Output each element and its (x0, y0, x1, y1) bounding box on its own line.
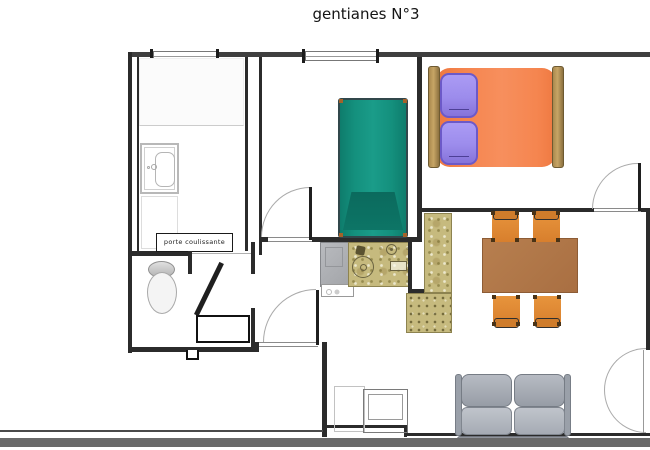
pillow (440, 121, 478, 165)
bedroom2-door-leaf (638, 163, 641, 211)
toilet-bowl (147, 272, 177, 314)
dining-chair (493, 296, 520, 326)
sofa-seat-cushion (461, 407, 512, 435)
double-bed-footboard (552, 66, 564, 168)
window-bedroom1 (305, 51, 377, 61)
bedroom1-door-threshold (268, 237, 312, 242)
entry-door-leaf (316, 290, 319, 345)
kitchen-board (390, 261, 407, 271)
entry-door-arc (263, 289, 316, 342)
wc-storage-box (196, 315, 250, 343)
kitchen-tap (355, 245, 366, 256)
dining-chair (533, 212, 560, 242)
kitchen-sink (352, 256, 374, 278)
wall-bathroom-right (245, 57, 248, 251)
kitchen-bar-return (406, 293, 452, 333)
wall-right (646, 212, 650, 350)
kitchen-hob (386, 244, 397, 255)
side-table-outline (334, 386, 365, 432)
bed-post (339, 233, 343, 237)
bedroom2-door-arc (592, 163, 638, 209)
wall-wc-angled (194, 262, 224, 316)
tv-stand (363, 389, 408, 433)
wall-left (128, 52, 132, 353)
wall-notch (186, 350, 199, 360)
double-bed-headboard (428, 66, 440, 168)
wall-bedroom2-bottom-stub (641, 208, 650, 212)
window-cap (302, 49, 305, 63)
dining-chair (492, 212, 519, 242)
french-door-leaf (643, 350, 644, 433)
window-cap (376, 49, 379, 63)
sink-basin (155, 152, 175, 187)
faucet-dot (151, 164, 157, 170)
bedroom1-door-arc (261, 187, 310, 237)
dining-table (482, 238, 578, 293)
wall-living-left (322, 342, 327, 437)
terrace-band (0, 438, 650, 447)
sofa-arm (564, 374, 571, 436)
bathroom-sink (140, 143, 179, 194)
bedroom1-door-leaf (309, 187, 312, 240)
pillow (440, 73, 478, 118)
sofa-back-cushion (514, 374, 565, 407)
bed-post (339, 99, 343, 103)
sofa-seat-cushion (514, 407, 565, 435)
wall-bedroom1-bedroom2 (417, 57, 422, 242)
dining-chair (534, 296, 561, 326)
floor-plan: gentianes N°3 porte coulissante (0, 0, 650, 450)
shower-area (139, 58, 244, 126)
bed-post (403, 233, 407, 237)
wall-wc-stub (188, 251, 192, 274)
bed-post (403, 99, 407, 103)
terrace-edge-line (0, 430, 323, 432)
sofa (455, 372, 571, 445)
sliding-door-label: porte coulissante (156, 233, 233, 252)
single-bed (338, 98, 408, 238)
entry-door-threshold (259, 342, 318, 347)
french-door-arc-bottom (604, 390, 646, 433)
french-door-arc-top (604, 348, 646, 390)
sofa-back-cushion (461, 374, 512, 407)
sliding-door-track (192, 253, 252, 254)
wall-corridor-west-upper (251, 242, 255, 274)
kitchen-bar-counter (424, 213, 452, 293)
plan-title: gentianes N°3 (312, 5, 419, 23)
faucet-dot (147, 166, 150, 169)
